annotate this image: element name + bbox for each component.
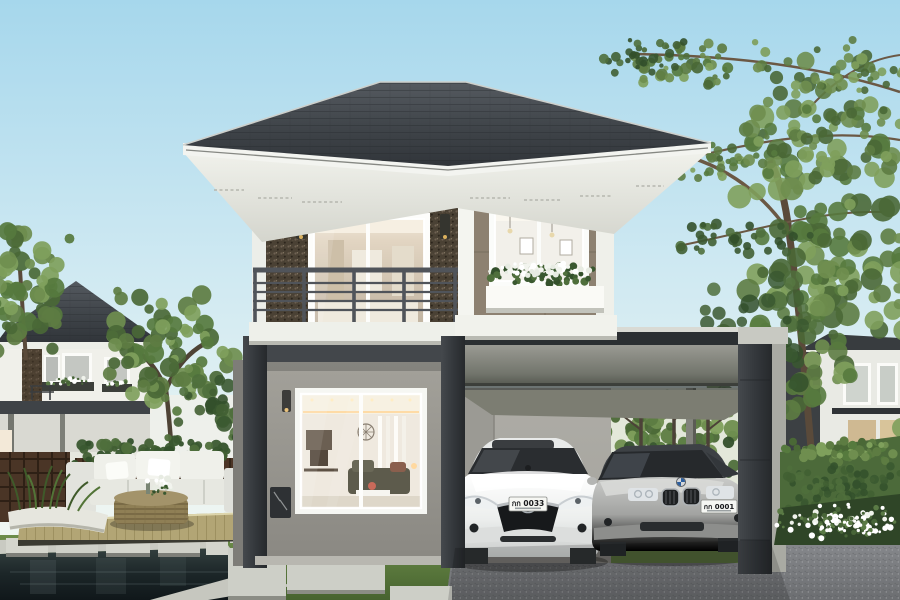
license-plate-white-sedan: กก 0033 [509, 497, 547, 511]
license-plate-silver-sedan: กก 0001 [701, 500, 737, 513]
svg-text:กก 0033: กก 0033 [512, 499, 545, 508]
balcony-fascia [249, 322, 459, 344]
house-corner-pillar [441, 336, 465, 568]
entry-step [255, 556, 461, 565]
floor-band [455, 315, 617, 339]
mailbox [270, 487, 291, 518]
scene-canvas: กก 0033 กก 0001 [0, 0, 900, 600]
carport-shadow [448, 540, 790, 600]
svg-text:กก 0001: กก 0001 [704, 503, 735, 511]
ground-floor [233, 336, 465, 568]
rendered-photo: กก 0033 กก 0001 [0, 0, 900, 600]
living-room-window [295, 388, 427, 514]
